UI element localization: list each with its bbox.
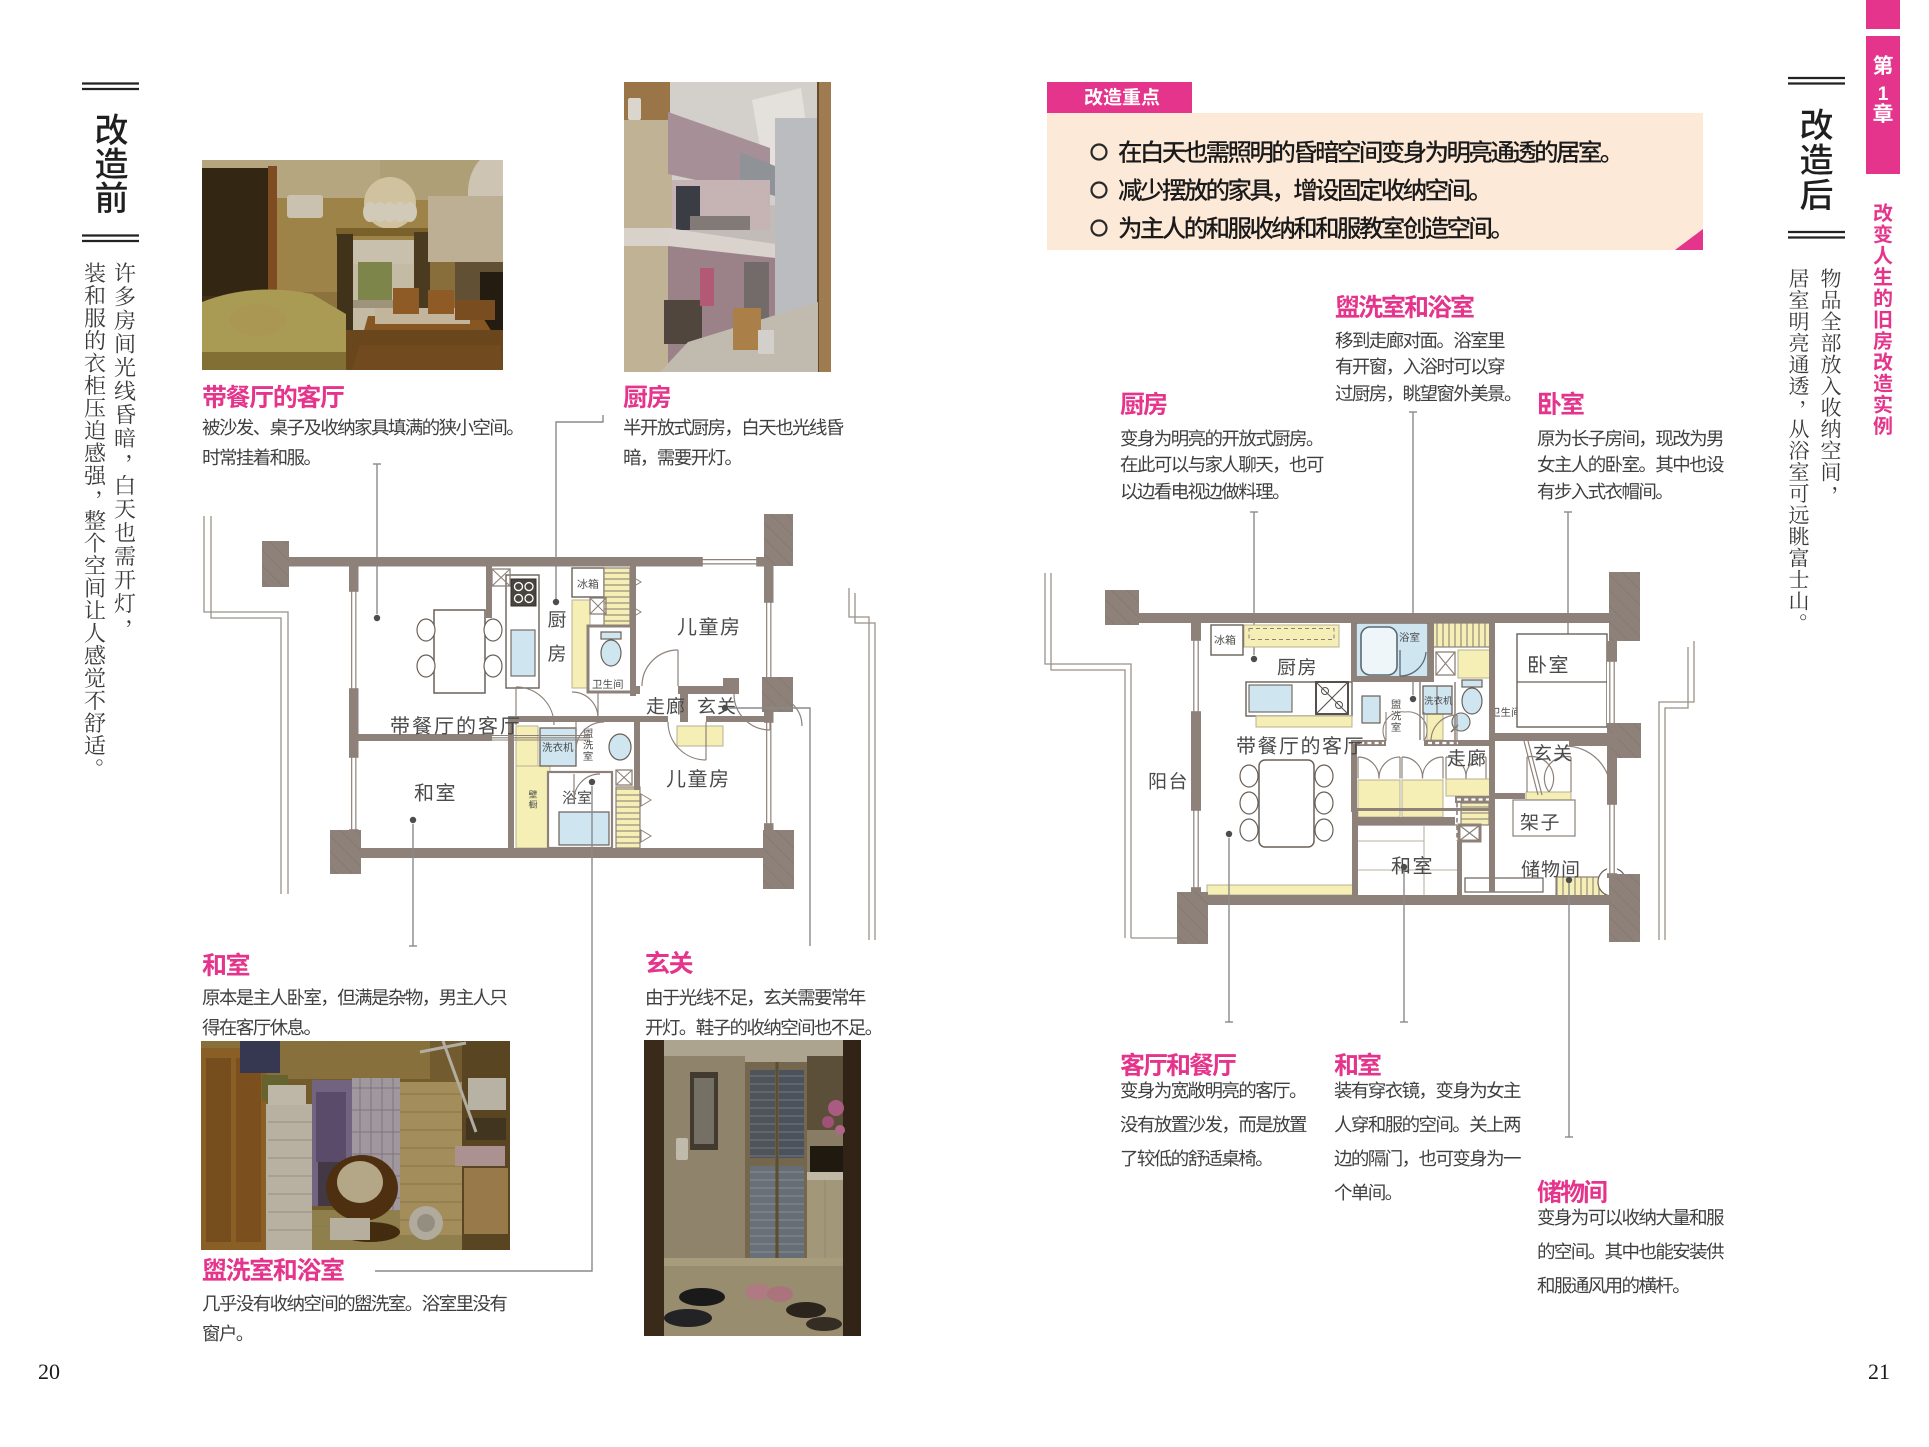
svg-text:20: 20 [38,1359,60,1384]
svg-text:21: 21 [1868,1359,1890,1384]
svg-text:1: 1 [1878,84,1889,105]
